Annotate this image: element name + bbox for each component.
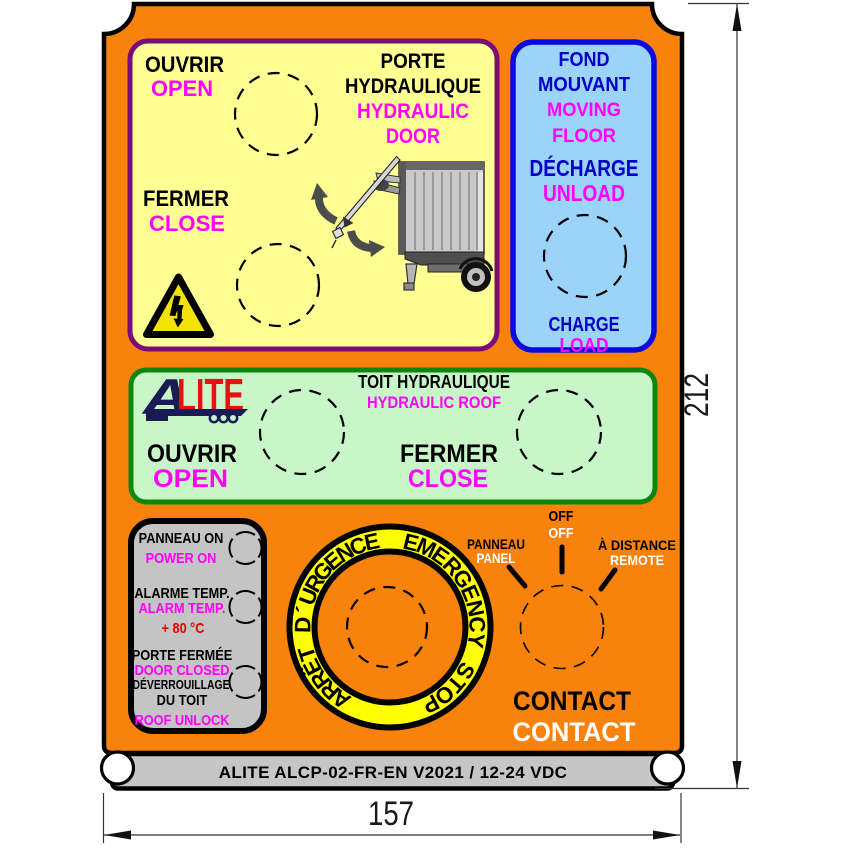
svg-text:PORTE: PORTE (381, 49, 446, 73)
svg-text:HYDRAULIQUE: HYDRAULIQUE (345, 74, 481, 98)
svg-text:+ 80 °C: + 80 °C (162, 619, 205, 636)
svg-text:PANEL: PANEL (477, 550, 516, 566)
svg-text:OUVRIR: OUVRIR (147, 440, 237, 468)
svg-text:DÉCHARGE: DÉCHARGE (530, 154, 639, 181)
svg-text:OPEN: OPEN (153, 465, 228, 493)
svg-text:UNLOAD: UNLOAD (543, 180, 625, 206)
svg-text:DOOR: DOOR (386, 125, 440, 148)
svg-text:REMOTE: REMOTE (610, 552, 664, 568)
svg-text:C: C (464, 616, 489, 633)
svg-text:HYDRAULIC ROOF: HYDRAULIC ROOF (367, 393, 501, 412)
svg-text:DOOR CLOSED: DOOR CLOSED (135, 661, 230, 678)
svg-text:MOUVANT: MOUVANT (538, 74, 630, 96)
svg-text:157: 157 (368, 795, 414, 833)
svg-text:ALARM TEMP.: ALARM TEMP. (139, 599, 226, 616)
svg-text:ROOF UNLOCK: ROOF UNLOCK (135, 711, 230, 728)
svg-text:PANNEAU ON: PANNEAU ON (139, 529, 224, 546)
svg-text:CHARGE: CHARGE (549, 314, 620, 336)
svg-text:DU TOIT: DU TOIT (157, 691, 208, 708)
svg-text:HYDRAULIC: HYDRAULIC (357, 100, 469, 123)
svg-text:LOAD: LOAD (560, 335, 609, 357)
svg-text:OFF: OFF (549, 525, 574, 542)
svg-text:FERMER: FERMER (400, 440, 498, 468)
svg-text:MOVING: MOVING (547, 100, 621, 121)
svg-text:OUVRIR: OUVRIR (145, 52, 224, 77)
svg-text:À DISTANCE: À DISTANCE (598, 537, 676, 553)
svg-text:ALITE ALCP-02-FR-EN V2021 / 12: ALITE ALCP-02-FR-EN V2021 / 12-24 VDC (219, 763, 568, 782)
svg-text:CONTACT: CONTACT (513, 717, 636, 747)
svg-text:CLOSE: CLOSE (149, 211, 225, 236)
svg-text:FERMER: FERMER (143, 186, 229, 211)
svg-text:OFF: OFF (549, 508, 574, 525)
svg-text:D: D (290, 616, 315, 633)
svg-text:CONTACT: CONTACT (513, 686, 631, 716)
svg-text:POWER ON: POWER ON (146, 549, 217, 566)
svg-text:OPEN: OPEN (151, 76, 213, 101)
svg-text:FLOOR: FLOOR (552, 126, 616, 147)
svg-text:CLOSE: CLOSE (408, 465, 488, 493)
svg-text:TOIT HYDRAULIQUE: TOIT HYDRAULIQUE (358, 372, 510, 392)
svg-text:212: 212 (678, 373, 716, 417)
svg-text:FOND: FOND (559, 49, 610, 71)
